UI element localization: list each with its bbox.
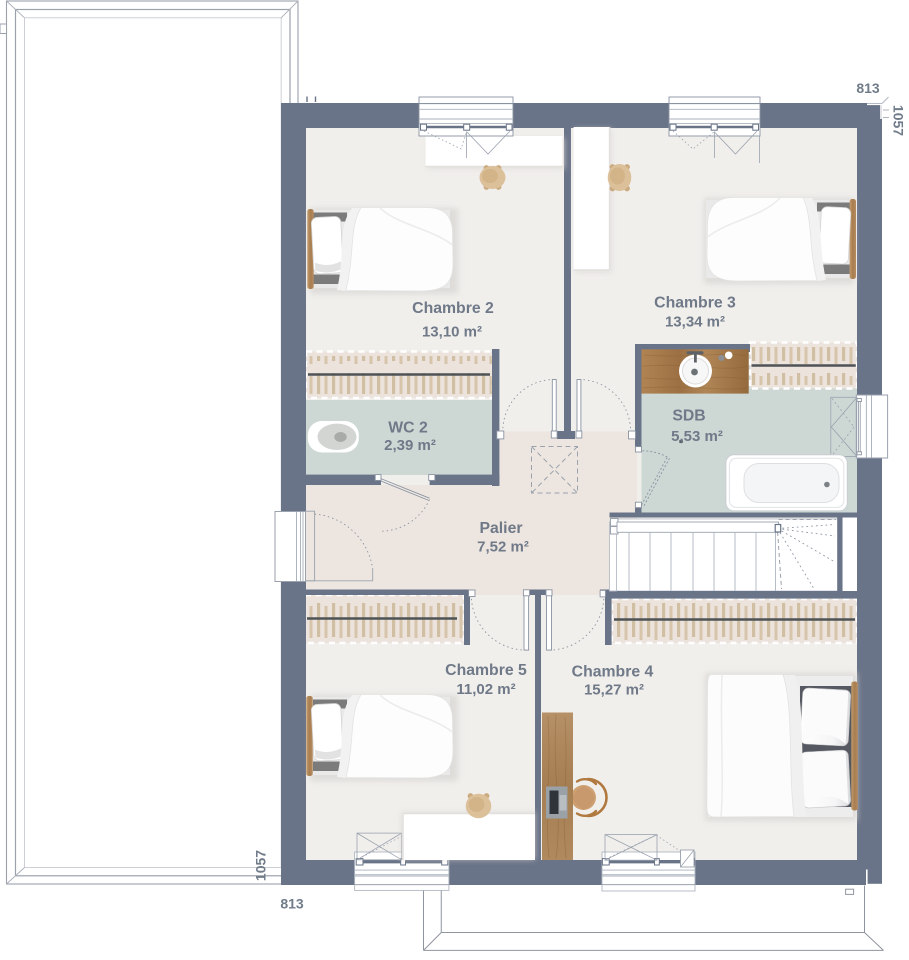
- svg-text:13,34 m²: 13,34 m²: [665, 314, 725, 331]
- svg-text:Chambre 4: Chambre 4: [572, 664, 654, 681]
- svg-text:15,27 m²: 15,27 m²: [584, 682, 644, 699]
- svg-text:Chambre 3: Chambre 3: [654, 295, 736, 312]
- svg-text:5,53 m²: 5,53 m²: [671, 428, 723, 445]
- svg-text:WC 2: WC 2: [388, 420, 428, 437]
- svg-text:2,39 m²: 2,39 m²: [384, 437, 436, 454]
- svg-text:Chambre 2: Chambre 2: [412, 300, 494, 317]
- svg-text:SDB: SDB: [672, 408, 705, 425]
- svg-text:1057: 1057: [253, 850, 269, 881]
- svg-text:7,52 m²: 7,52 m²: [477, 539, 529, 556]
- svg-text:13,10 m²: 13,10 m²: [422, 324, 482, 341]
- svg-text:11,02 m²: 11,02 m²: [456, 681, 515, 698]
- svg-text:813: 813: [856, 80, 880, 96]
- svg-text:813: 813: [280, 896, 304, 912]
- svg-text:1057: 1057: [891, 105, 907, 136]
- svg-text:Chambre 5: Chambre 5: [445, 662, 527, 679]
- svg-text:Palier: Palier: [479, 520, 522, 537]
